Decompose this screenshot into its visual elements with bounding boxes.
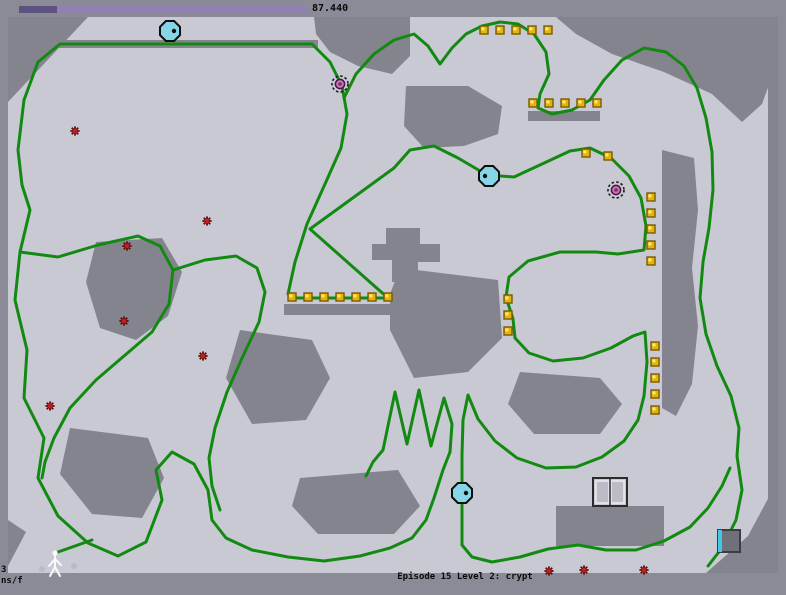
gold-piece-shine (505, 328, 508, 331)
timer-value: 87.440 (312, 4, 348, 14)
gold-piece-shine (505, 296, 508, 299)
mine (205, 219, 209, 223)
level-canvas[interactable] (0, 0, 786, 595)
gold-piece-shine (562, 100, 565, 103)
gold-piece-shine (337, 294, 340, 297)
exit-door-panel-left (596, 481, 609, 503)
gold-piece-shine (648, 226, 651, 229)
wall-bottom-center (292, 470, 420, 534)
dust-puff (39, 566, 45, 572)
level-label: Episode 15 Level 2: crypt (340, 573, 590, 582)
gold-piece-shine (545, 27, 548, 30)
game-viewport[interactable]: 87.440 Episode 15 Level 2: crypt 3 ns/f (0, 0, 786, 595)
drone (479, 166, 499, 186)
wall-gold-row3-ledge (284, 304, 392, 315)
mine (48, 404, 52, 408)
timer-bar-remaining (57, 6, 308, 13)
gold-piece-shine (652, 407, 655, 410)
gold-piece-shine (369, 294, 372, 297)
drone-eye (172, 29, 176, 33)
drone (452, 483, 472, 503)
debug-readout-line2: ns/f (1, 577, 23, 586)
gold-piece-shine (353, 294, 356, 297)
gold-piece-shine (578, 100, 581, 103)
gold-piece-shine (648, 242, 651, 245)
gold-piece-shine (513, 27, 516, 30)
mine (122, 319, 126, 323)
gold-piece-shine (594, 100, 597, 103)
gold-piece-shine (385, 294, 388, 297)
gold-piece-shine (505, 312, 508, 315)
gauss-turret-center (338, 82, 342, 86)
gold-piece-shine (321, 294, 324, 297)
mine (73, 129, 77, 133)
mine (201, 354, 205, 358)
gauss-turret-center (614, 188, 618, 192)
gold-piece-shine (289, 294, 292, 297)
mine (125, 244, 129, 248)
drone (160, 21, 180, 41)
wall-right-column (662, 150, 698, 416)
gold-piece-shine (583, 150, 586, 153)
gold-piece-shine (652, 359, 655, 362)
gold-piece-shine (605, 153, 608, 156)
exit-door-panel-right (611, 481, 624, 503)
gold-piece-shine (481, 27, 484, 30)
gold-piece-shine (546, 100, 549, 103)
thwump-face (718, 530, 722, 552)
gold-piece-shine (652, 375, 655, 378)
gold-piece-shine (648, 210, 651, 213)
timer-bar (19, 6, 308, 13)
drone-eye (464, 491, 468, 495)
gold-piece-shine (652, 343, 655, 346)
debug-readout-line1: 3 (1, 566, 6, 575)
timer-bar-elapsed (19, 6, 57, 13)
gold-piece-shine (648, 258, 651, 261)
gold-piece-shine (652, 391, 655, 394)
gold-piece-shine (530, 100, 533, 103)
gold-piece-shine (497, 27, 500, 30)
gold-piece-shine (648, 194, 651, 197)
gold-piece-shine (529, 27, 532, 30)
wall-under-door (556, 506, 664, 546)
gold-piece-shine (305, 294, 308, 297)
mine (582, 568, 586, 572)
mine (642, 568, 646, 572)
drone-eye (483, 174, 487, 178)
ninja-head (52, 550, 57, 555)
dust-puff (71, 563, 77, 569)
